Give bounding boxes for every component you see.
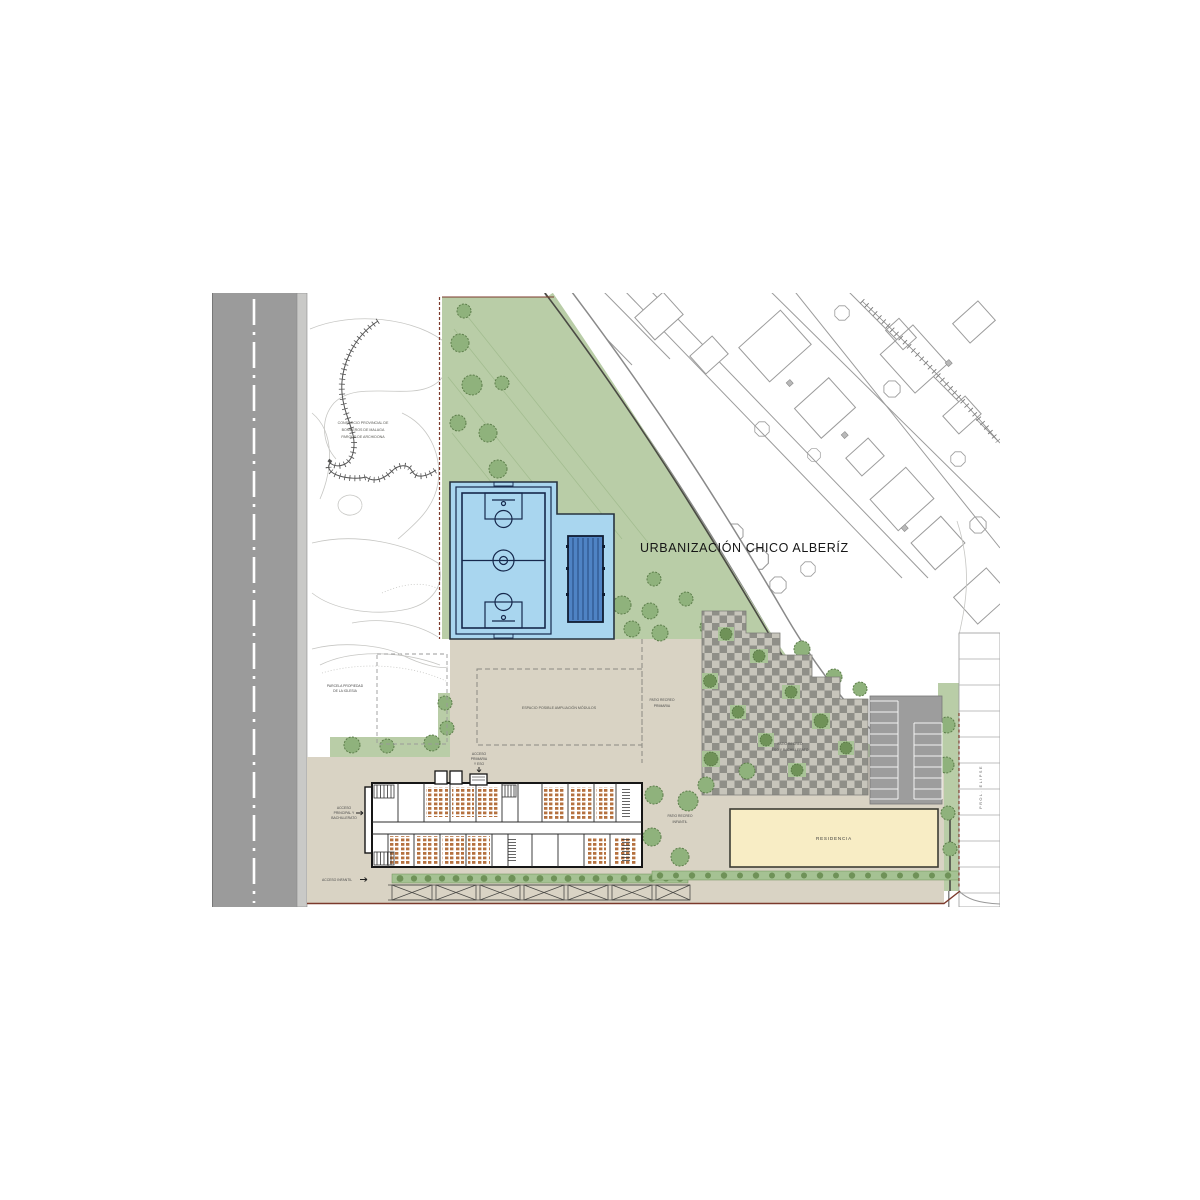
- residence-building: RESIDENCIA: [730, 809, 938, 867]
- acceso-infantil-text: ACCESO INFANTIL: [322, 878, 352, 882]
- hedge-strip-school: [392, 874, 688, 883]
- road-sidewalk: [297, 293, 307, 907]
- patio-eso-line2: ESO Y BACHILLERATO: [772, 748, 809, 752]
- hedge-strip-residence: [652, 871, 974, 880]
- church-parcel-dashed: [377, 654, 447, 744]
- patio-eso-line1: PATIO RECREO: [777, 742, 802, 746]
- consorcio-line3: PARQUE DE ARCHIDONA: [341, 435, 385, 439]
- swimming-pool: [566, 536, 605, 622]
- parcela-line1: PARCELA PROPIEDAD: [327, 684, 364, 688]
- contour-area: CONSORCIO PROVINCIAL DE BOMBEROS DE MALA…: [310, 319, 449, 681]
- residence-label: RESIDENCIA: [816, 836, 852, 841]
- acceso-principal-line3: BACHILLERATO: [331, 816, 357, 820]
- parcela-line2: DE LA IGLESIA: [333, 689, 357, 693]
- parcela-label: PARCELA PROPIEDAD DE LA IGLESIA: [327, 684, 364, 693]
- acceso-primaria-line3: Y ESO: [474, 762, 485, 766]
- school-building: [365, 771, 642, 867]
- patio-infantil-line2: INFANTIL: [673, 820, 688, 824]
- acceso-principal-line2: PRINCIPAL Y: [334, 811, 355, 815]
- expansion-label: ESPACIO POSIBLE AMPLIACIÓN MÓDULOS: [522, 705, 597, 710]
- street-name-label: PROL. ELIPSE: [978, 765, 983, 809]
- right-sidewalk: PROL. ELIPSE: [959, 633, 1000, 907]
- consorcio-line1: CONSORCIO PROVINCIAL DE: [338, 421, 389, 425]
- parking-area: [870, 696, 942, 804]
- left-road: [212, 293, 307, 907]
- acceso-principal-line1: ACCESO: [337, 806, 352, 810]
- site-plan-drawing: CONSORCIO PROVINCIAL DE BOMBEROS DE MALA…: [202, 293, 1000, 907]
- patio-primaria-line1: PATIO RECREO: [649, 698, 674, 702]
- retaining-wall: [329, 321, 436, 480]
- patio-primaria-line2: PRIMARIA: [654, 704, 671, 708]
- site-plan-canvas: { "title": "URBANIZACIÓN CHICO ALBERÍZ",…: [0, 0, 1200, 1200]
- consorcio-label: CONSORCIO PROVINCIAL DE BOMBEROS DE MALA…: [338, 421, 389, 439]
- consorcio-line2: BOMBEROS DE MALAGA: [342, 428, 385, 432]
- acceso-primaria-line2: PRIMARIA: [471, 757, 488, 761]
- patio-infantil-line1: PATIO RECREO: [667, 814, 692, 818]
- acceso-primaria-line1: ACCESO: [472, 752, 487, 756]
- urbanization-title: URBANIZACIÓN CHICO ALBERÍZ: [640, 540, 849, 555]
